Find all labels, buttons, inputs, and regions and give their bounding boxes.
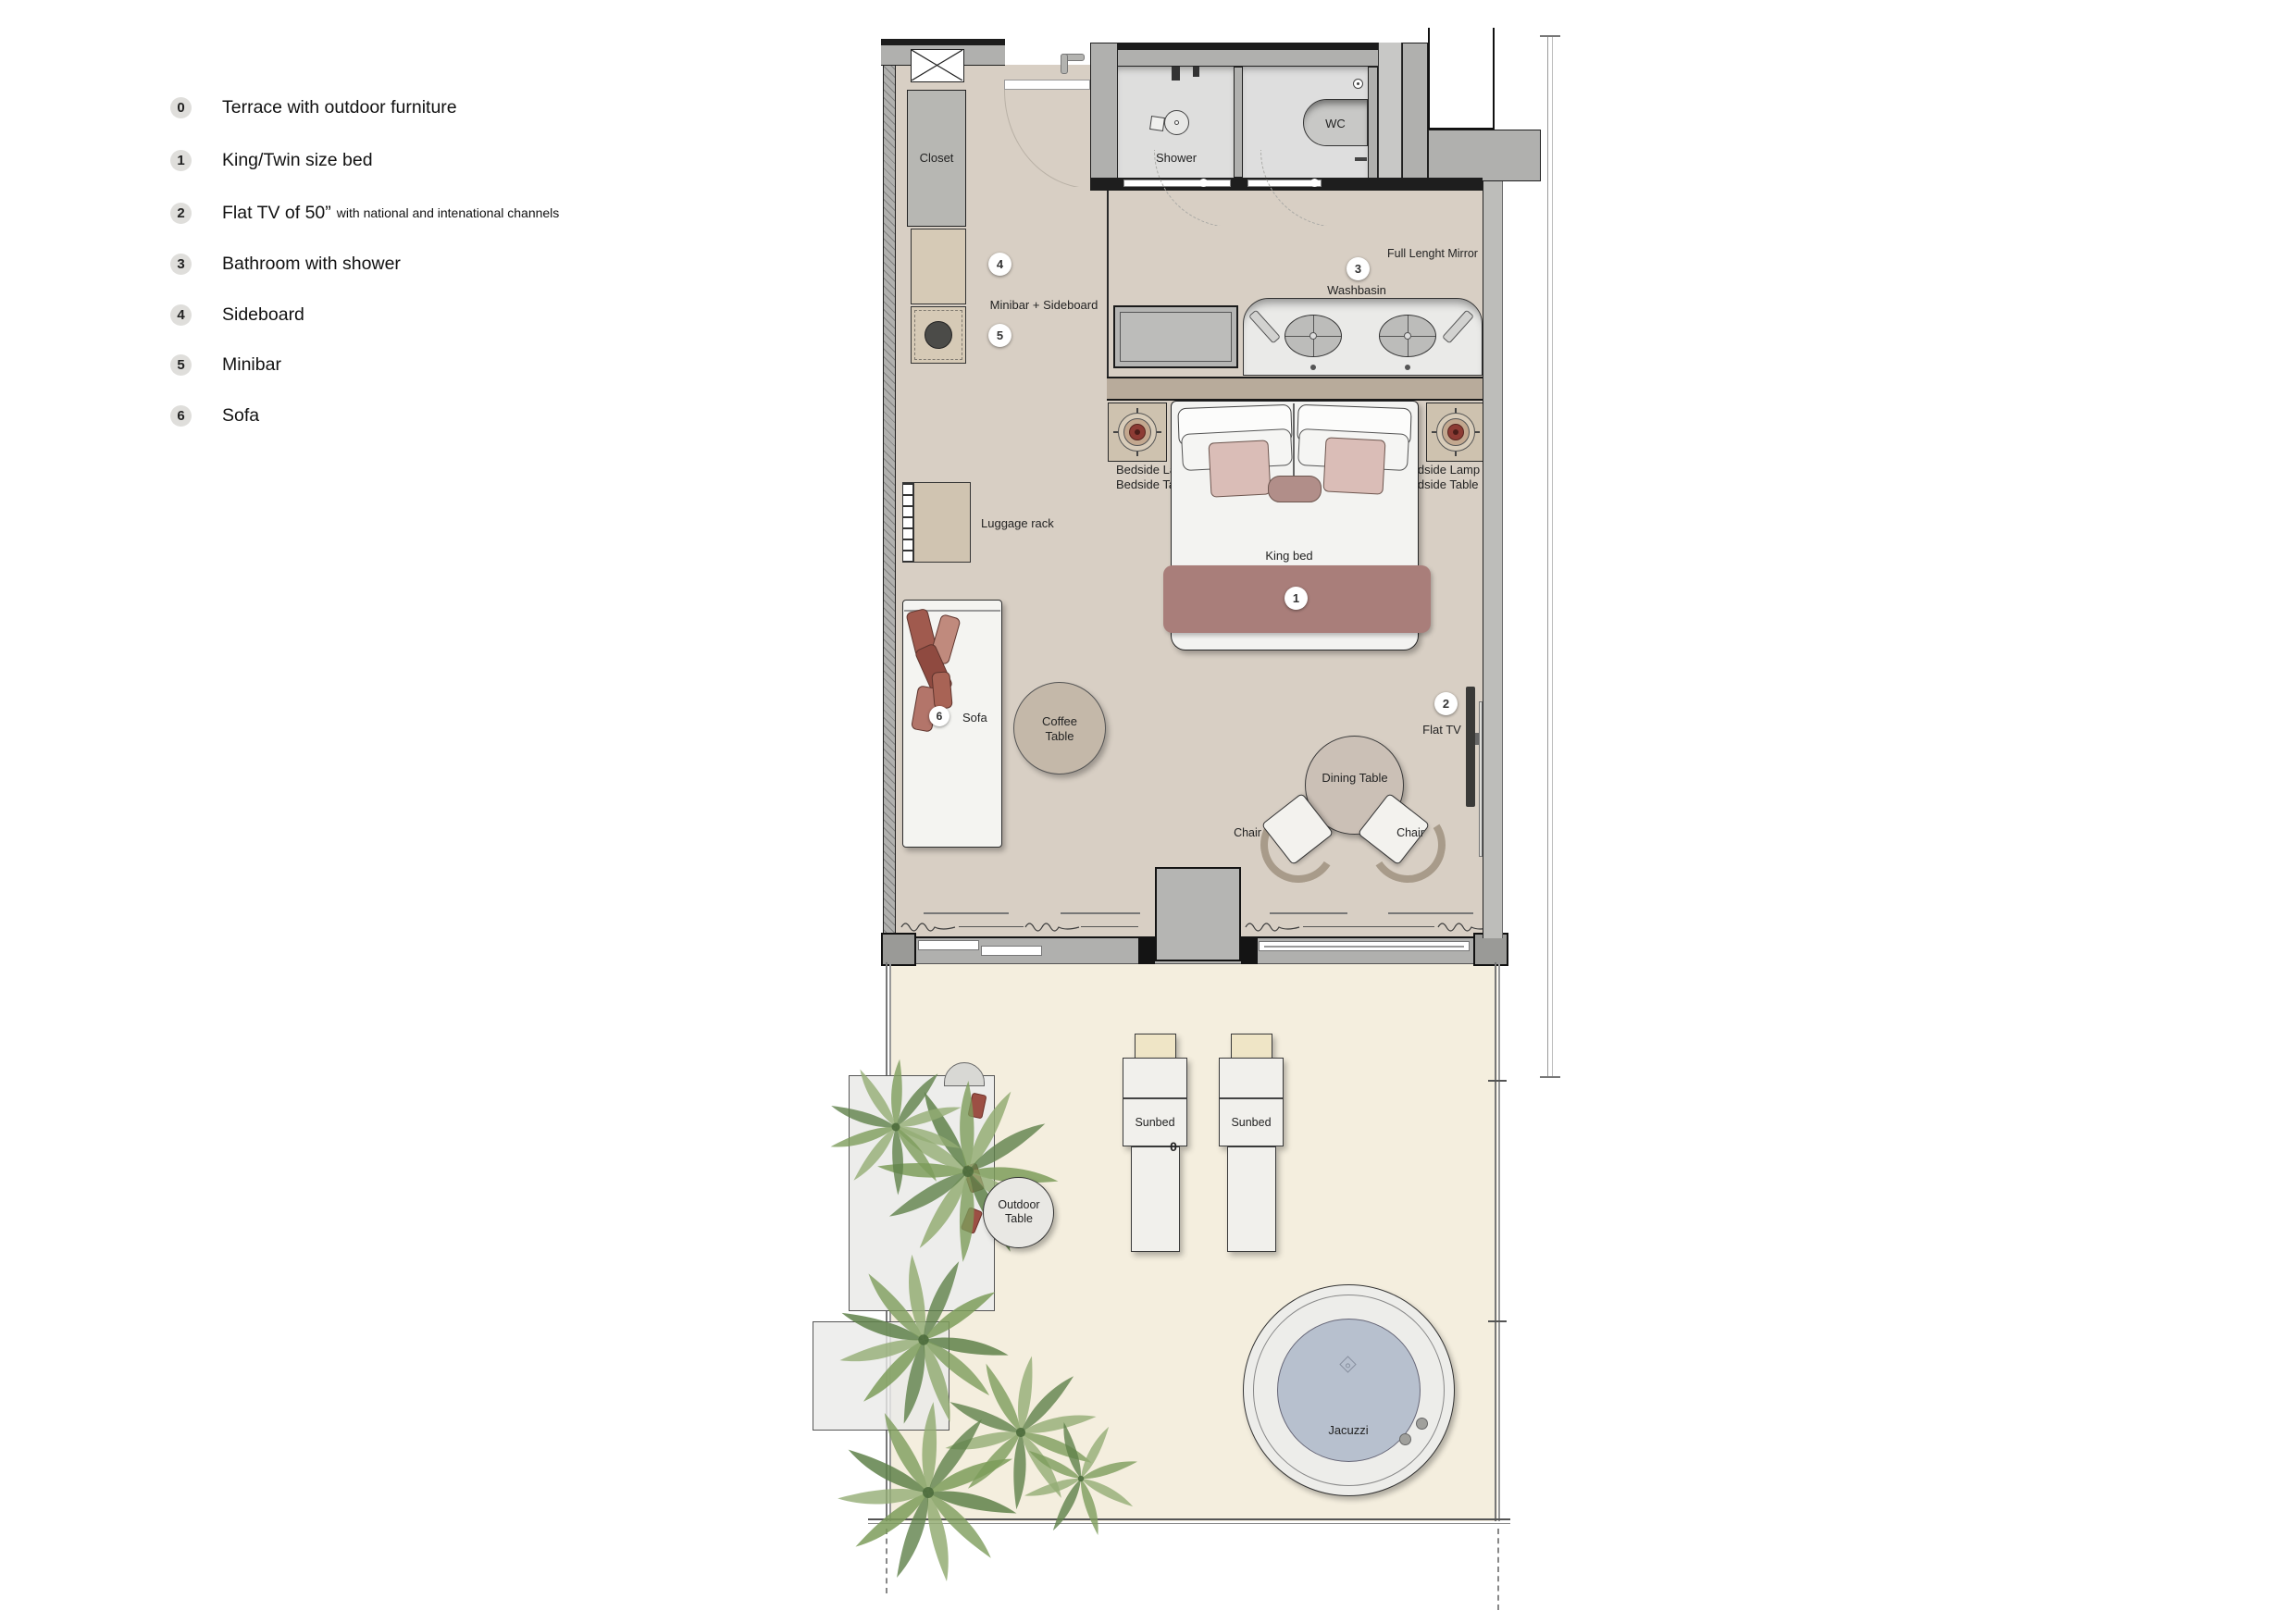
- legend-item-6: 6 Sofa: [170, 403, 259, 427]
- shower-drain-icon: [1149, 116, 1165, 131]
- minibar-sink: [925, 321, 952, 349]
- step-bracket-right: [1241, 936, 1258, 964]
- pelmet-line-4: [1388, 912, 1473, 914]
- counter-dot2: [1405, 365, 1410, 370]
- legend-label-1: King/Twin size bed: [222, 150, 373, 171]
- marker-sideboard: 4: [988, 253, 1011, 276]
- entry-door-swing-arc: [1004, 90, 1090, 187]
- minibar-cabinet: [911, 306, 966, 364]
- luggage-rack-label: Luggage rack: [981, 516, 1083, 531]
- sideboard-cabinet: [911, 229, 966, 304]
- marker-sofa: 6: [929, 706, 949, 726]
- pelmet-line-1: [924, 912, 1009, 914]
- marker-bed: 1: [1285, 587, 1308, 610]
- basin-left: [1285, 315, 1342, 357]
- dining-table-label: Dining Table: [1322, 771, 1388, 786]
- legend-label-5: Minibar: [222, 354, 281, 376]
- legend-badge-3: 3: [170, 254, 192, 275]
- sunbed-right-label: Sunbed: [1223, 1116, 1279, 1130]
- step-bracket-left: [1138, 936, 1155, 964]
- sunbed-left-head: [1135, 1034, 1176, 1059]
- nook-wall-stub: [1107, 191, 1109, 378]
- sofa-label: Sofa: [962, 711, 1009, 725]
- shower-control-icon2: [1193, 67, 1199, 77]
- wc-right-wall: [1368, 67, 1378, 191]
- pillow-pink-left: [1209, 440, 1272, 497]
- vent-x-icon: [912, 50, 962, 81]
- entrance-step: [1155, 867, 1241, 961]
- floorplan-page: 0 Terrace with outdoor furniture 1 King/…: [0, 0, 2296, 1623]
- curtain-line-2: [1081, 926, 1138, 927]
- sofa-pillow-5: [931, 671, 952, 710]
- legend-item-2: 2 Flat TV of 50” with national and inten…: [170, 201, 559, 225]
- door-slot-b: [981, 946, 1042, 956]
- wc-handle-icon: [1355, 157, 1367, 161]
- headboard-wall: [1107, 377, 1485, 401]
- sunbed-right-back: [1219, 1058, 1284, 1146]
- dimension-tick-bottom: [1540, 1076, 1560, 1078]
- legend-item-5: 5 Minibar: [170, 353, 281, 377]
- dimension-tick-top: [1540, 35, 1560, 37]
- washbasin-label: Washbasin: [1301, 283, 1412, 298]
- legend-label-6: Sofa: [222, 405, 259, 427]
- wall-top-left-band: [881, 39, 1005, 45]
- sunbed-right-head: [1231, 1034, 1272, 1059]
- jacuzzi-label: Jacuzzi: [1311, 1423, 1385, 1438]
- bedside-lamp-left-icon: [1108, 403, 1167, 462]
- vent-box: [911, 49, 964, 82]
- legend-item-1: 1 King/Twin size bed: [170, 148, 373, 172]
- block-top-right: [1428, 130, 1541, 181]
- shower-head-icon: [1164, 110, 1189, 135]
- closet-label: Closet: [909, 151, 964, 166]
- pelmet-line-3: [1270, 912, 1347, 914]
- bed-center-crease: [1293, 403, 1295, 476]
- legend-label-4: Sideboard: [222, 304, 304, 326]
- niche-top-right: [1428, 28, 1495, 130]
- bedside-lamp-right-icon: [1426, 403, 1485, 462]
- legend-item-0: 0 Terrace with outdoor furniture: [170, 95, 457, 119]
- legend-label-2: Flat TV of 50”: [222, 203, 331, 224]
- entry-threshold: [1004, 80, 1090, 90]
- minibar-sideboard-label: Minibar + Sideboard: [983, 298, 1105, 313]
- counter-dot1: [1310, 365, 1316, 370]
- legend-item-3: 3 Bathroom with shower: [170, 252, 401, 276]
- legend-badge-5: 5: [170, 354, 192, 376]
- wall-right: [1483, 181, 1503, 938]
- bolster-pillow: [1268, 476, 1322, 502]
- legend-badge-4: 4: [170, 304, 192, 326]
- legend-badge-1: 1: [170, 150, 192, 171]
- sunbed-right-fold: [1220, 1097, 1283, 1099]
- wc-spot-icon: [1353, 79, 1363, 89]
- legend-label-0: Terrace with outdoor furniture: [222, 97, 457, 118]
- flat-tv: [1466, 687, 1475, 807]
- rail-tick-2: [1488, 1320, 1507, 1322]
- entry-door-handle-icon2: [1061, 54, 1068, 74]
- shower-control-icon: [1172, 67, 1180, 81]
- basin-right: [1379, 315, 1436, 357]
- coffee-table-label: Coffee Table: [1027, 714, 1092, 743]
- palm-trees: [757, 1035, 1175, 1612]
- marker-minibar: 5: [988, 324, 1011, 347]
- rail-tick-1: [1488, 1080, 1507, 1082]
- sunbed-left-label: Sunbed: [1127, 1116, 1183, 1130]
- wc-label: WC: [1312, 117, 1359, 131]
- luggage-strap: [902, 482, 913, 563]
- pelmet-line-2: [1061, 912, 1140, 914]
- door-slot-a: [918, 940, 979, 950]
- shower-door-arc: [1154, 150, 1232, 226]
- outdoor-table-label: Outdoor Table: [990, 1198, 1048, 1226]
- jacuzzi-jet-2: [1416, 1418, 1428, 1430]
- curtain-squiggle-3: [1244, 919, 1301, 934]
- marker-bathroom: 3: [1347, 257, 1370, 280]
- terrace-rail-right: [1495, 962, 1496, 1521]
- service-shaft: [1378, 43, 1402, 191]
- legend-badge-0: 0: [170, 97, 192, 118]
- king-bed-label: King bed: [1243, 549, 1335, 564]
- dimension-line-right2: [1552, 35, 1553, 1078]
- curtain-squiggle-1: [900, 919, 957, 934]
- wall-top-right: [1402, 43, 1428, 191]
- luggage-rack: [913, 482, 971, 563]
- legend-item-4: 4 Sideboard: [170, 303, 304, 327]
- curtain-squiggle-2: [1024, 919, 1081, 934]
- sunbed-right-seat: [1227, 1146, 1276, 1252]
- door-slot-c: [1259, 941, 1470, 951]
- tv-cabinet: [1113, 305, 1238, 368]
- chair-right-label: Chair: [1383, 826, 1438, 840]
- chair-left-label: Chair: [1220, 826, 1275, 840]
- bathroom-left-wall: [1090, 43, 1118, 191]
- legend-sublabel-2: with national and intenational channels: [337, 205, 560, 220]
- marker-tv: 2: [1434, 692, 1458, 715]
- wall-post-left: [881, 933, 916, 966]
- marker-terrace: 0: [1164, 1139, 1183, 1155]
- legend-label-3: Bathroom with shower: [222, 254, 401, 275]
- legend-badge-2: 2: [170, 203, 192, 224]
- dash-extension-right: [1497, 1529, 1499, 1610]
- sunbed-left-fold: [1123, 1097, 1186, 1099]
- dimension-line-right: [1547, 35, 1548, 1078]
- sunbed-left-seat: [1131, 1146, 1180, 1252]
- jacuzzi-jet-1: [1399, 1433, 1411, 1445]
- curtain-line-3: [1303, 926, 1434, 927]
- flat-tv-label: Flat TV: [1414, 723, 1470, 737]
- legend-badge-6: 6: [170, 405, 192, 427]
- pillow-pink-right: [1323, 437, 1386, 494]
- curtain-line-1: [959, 926, 1024, 927]
- shower-wc-divider: [1234, 67, 1243, 178]
- wall-left: [883, 39, 896, 939]
- full-length-mirror-label: Full Lenght Mirror: [1377, 247, 1488, 261]
- sunbed-left-back: [1123, 1058, 1187, 1146]
- wc-door-arc: [1260, 150, 1338, 226]
- terrace-rail-right2: [1498, 962, 1500, 1521]
